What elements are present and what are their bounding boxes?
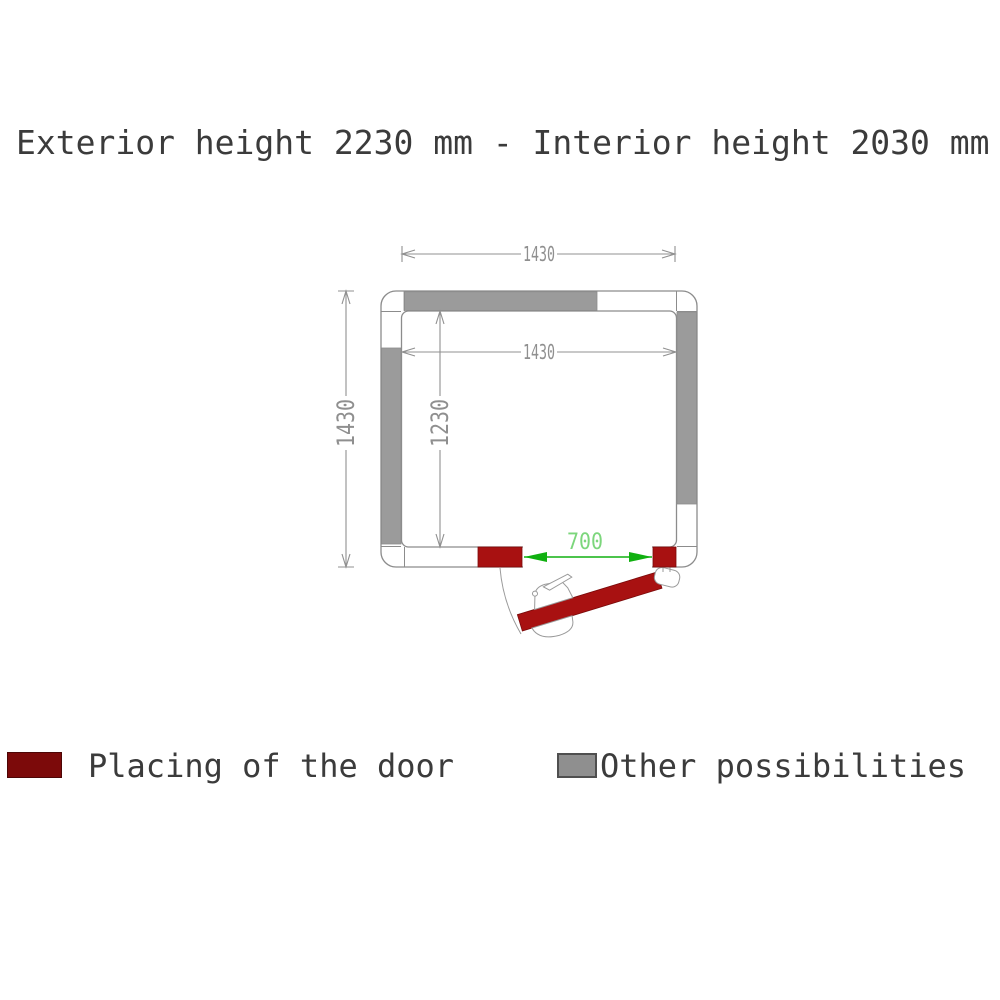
floor-plan-diagram: 1430 1430 1430 1230 700: [0, 0, 1000, 1000]
dim-door-value: 700: [567, 530, 603, 555]
legend-door-label: Placing of the door: [88, 747, 454, 785]
door-jamb-left: [478, 547, 522, 567]
legend-other-swatch: [557, 753, 597, 778]
dim-int-depth-value: 1230: [426, 399, 454, 447]
legend: Placing of the door Other possibilities: [0, 740, 1000, 800]
door-swing-arc: [500, 568, 521, 634]
gray-segment-right: [677, 312, 697, 504]
dim-ext-width-value: 1430: [523, 242, 555, 266]
gray-segment-left: [382, 348, 402, 544]
dim-ext-depth-value: 1430: [332, 399, 360, 447]
dim-int-width-value: 1430: [523, 340, 555, 364]
legend-other-label: Other possibilities: [600, 747, 966, 785]
gray-segment-top: [404, 292, 597, 311]
door-jamb-right: [653, 547, 676, 567]
legend-door-swatch: [7, 752, 62, 778]
cold-room-plan-page: Exterior height 2230 mm - Interior heigh…: [0, 0, 1000, 1000]
